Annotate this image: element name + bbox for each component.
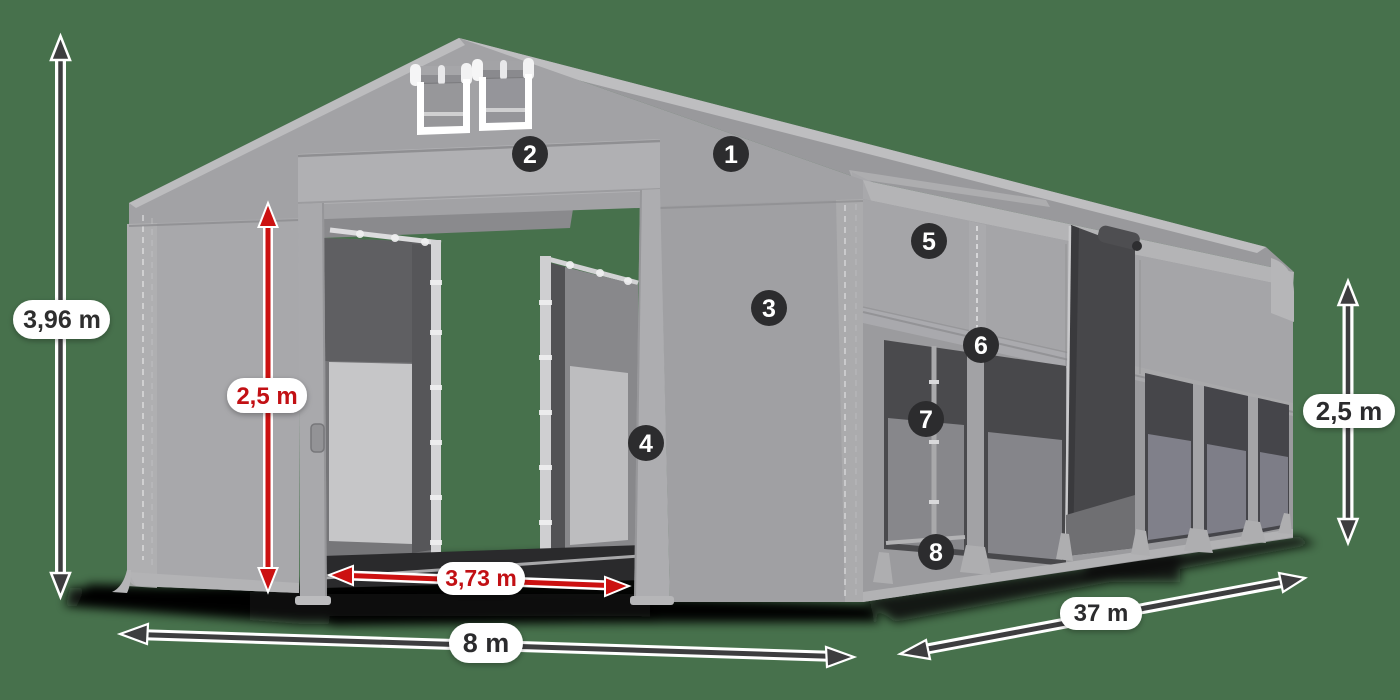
svg-text:2,5 m: 2,5 m <box>1316 396 1383 426</box>
svg-text:3,73 m: 3,73 m <box>445 565 517 591</box>
svg-text:1: 1 <box>724 141 738 169</box>
svg-text:2,5 m: 2,5 m <box>236 383 297 410</box>
svg-text:4: 4 <box>639 430 653 458</box>
svg-text:6: 6 <box>974 332 988 360</box>
svg-text:37 m: 37 m <box>1074 600 1129 627</box>
svg-text:3: 3 <box>762 295 776 323</box>
svg-text:5: 5 <box>922 228 936 256</box>
svg-text:3,96 m: 3,96 m <box>23 306 101 334</box>
svg-text:8: 8 <box>929 539 943 567</box>
svg-text:2: 2 <box>523 141 537 169</box>
svg-text:8 m: 8 m <box>463 628 510 658</box>
svg-text:7: 7 <box>919 406 933 434</box>
